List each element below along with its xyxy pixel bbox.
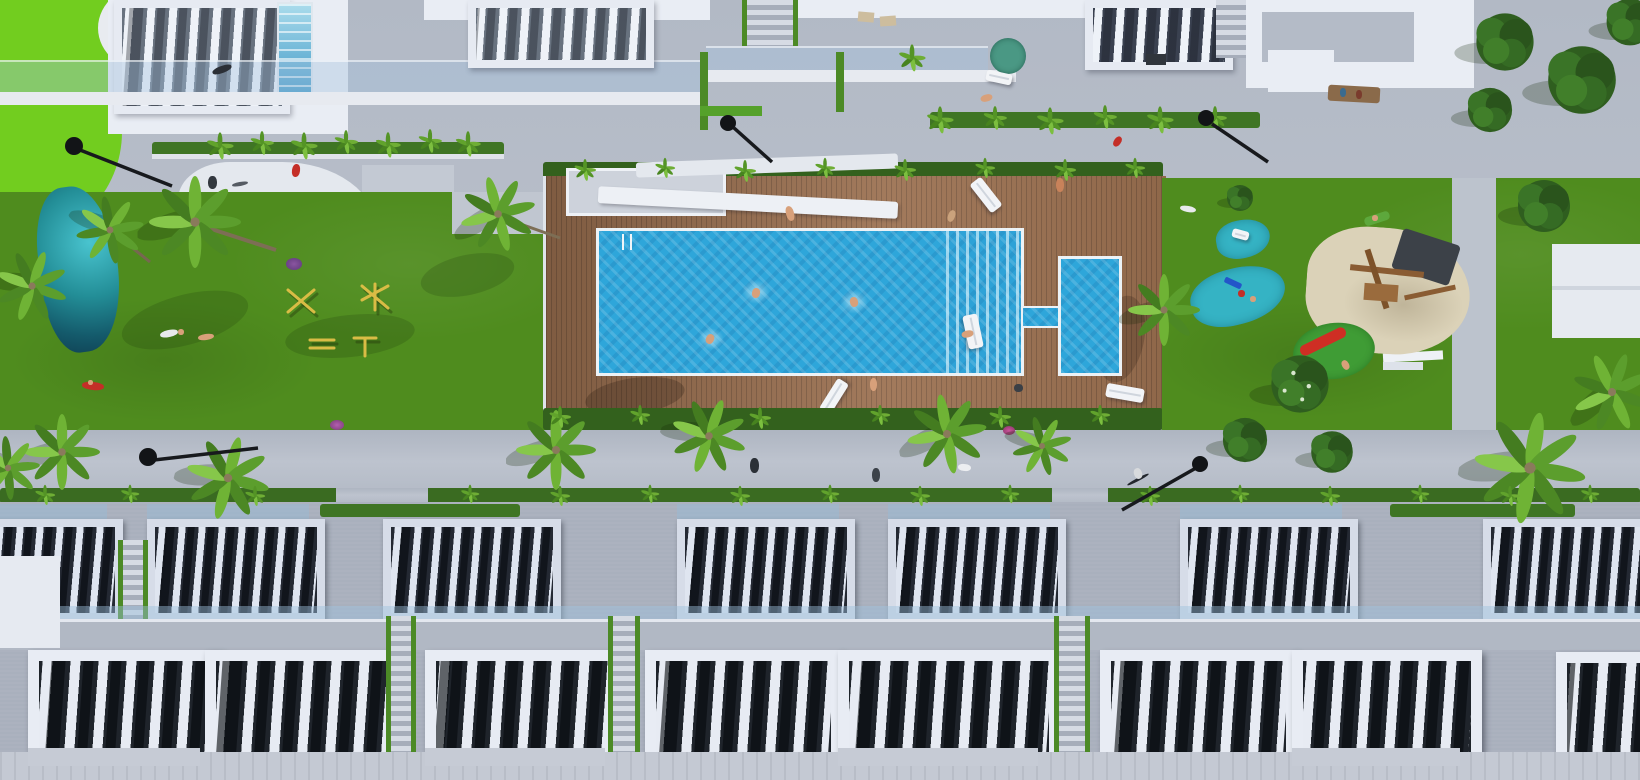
planter-strip-vertical	[836, 52, 844, 112]
person-on-deck	[870, 378, 877, 391]
person	[1356, 90, 1362, 99]
staircase-between-blocks	[1216, 0, 1246, 58]
terrace-planter	[1390, 504, 1575, 517]
terrace-parapet	[0, 92, 706, 105]
block-d-roof-slab	[1268, 50, 1334, 92]
pergola-slats	[212, 661, 397, 763]
person-on-green-float	[1372, 215, 1378, 221]
pool-channel	[1021, 306, 1061, 328]
terrace-glass	[1180, 504, 1342, 520]
white-building-corner	[0, 556, 60, 648]
pergola-slats	[151, 527, 321, 613]
wooden-chair	[858, 11, 875, 22]
flower-bush-pink	[1003, 426, 1015, 435]
bench-with-people	[1328, 85, 1381, 104]
glass-balustrade-band	[0, 606, 1640, 619]
pergola-slats	[387, 527, 557, 613]
terrace-low-wall	[152, 154, 504, 159]
person-on-deck	[1056, 178, 1064, 192]
pergola-slats	[1184, 527, 1354, 613]
child	[1238, 290, 1245, 297]
person-on-deck	[1014, 384, 1023, 392]
pergola-slats	[1487, 527, 1640, 613]
turf-strip	[700, 106, 762, 116]
pergola-slats	[474, 8, 648, 60]
person	[1340, 88, 1346, 97]
side-terrace-slab	[1552, 244, 1640, 338]
aerial-render-scene	[0, 0, 1640, 780]
pergola-slats	[1564, 663, 1640, 763]
person-lying	[980, 93, 993, 103]
staircase-between-blocks	[742, 0, 798, 46]
person	[208, 176, 217, 189]
climbing-frame-platform	[1363, 283, 1398, 302]
person-lying	[178, 329, 184, 335]
terrace-hedge-right	[930, 112, 1260, 128]
roof-apron	[838, 748, 1038, 766]
roof-apron	[28, 748, 200, 766]
terrace-glass	[147, 504, 309, 520]
flower-bush-purple	[286, 258, 302, 270]
pedestrian	[750, 458, 759, 473]
garden-bench-white	[1383, 362, 1423, 370]
terrace-glass	[0, 504, 107, 520]
pergola-slats	[681, 527, 851, 613]
parasol	[990, 38, 1026, 74]
child-red	[1111, 135, 1123, 148]
child	[1250, 296, 1256, 302]
pergola-slats	[892, 527, 1062, 613]
roof-apron	[425, 748, 605, 766]
pool-steps	[946, 231, 1021, 373]
pergola-slats	[652, 661, 834, 763]
bench	[1146, 54, 1166, 65]
pergola-slats	[1107, 661, 1289, 763]
mid-roof-strip	[0, 622, 1640, 650]
pool-ladder	[622, 234, 632, 250]
deck-hedge-bottom	[543, 408, 1163, 430]
terrace-planter	[320, 504, 520, 517]
terrace-glass	[677, 504, 839, 520]
terrace-glass	[888, 504, 1050, 520]
roof-apron	[1292, 748, 1460, 766]
paving-step	[452, 192, 546, 234]
apartment-pergola-b	[468, 0, 654, 68]
planter-strip-vertical	[700, 52, 708, 130]
wooden-chair	[880, 15, 897, 26]
person-on-red-towel	[88, 380, 93, 385]
terrace-parapet	[706, 70, 1016, 82]
kids-pool	[1058, 256, 1122, 376]
pedestrian	[872, 468, 880, 482]
flower-bush-purple	[330, 420, 344, 430]
side-terrace-line	[1552, 286, 1640, 290]
